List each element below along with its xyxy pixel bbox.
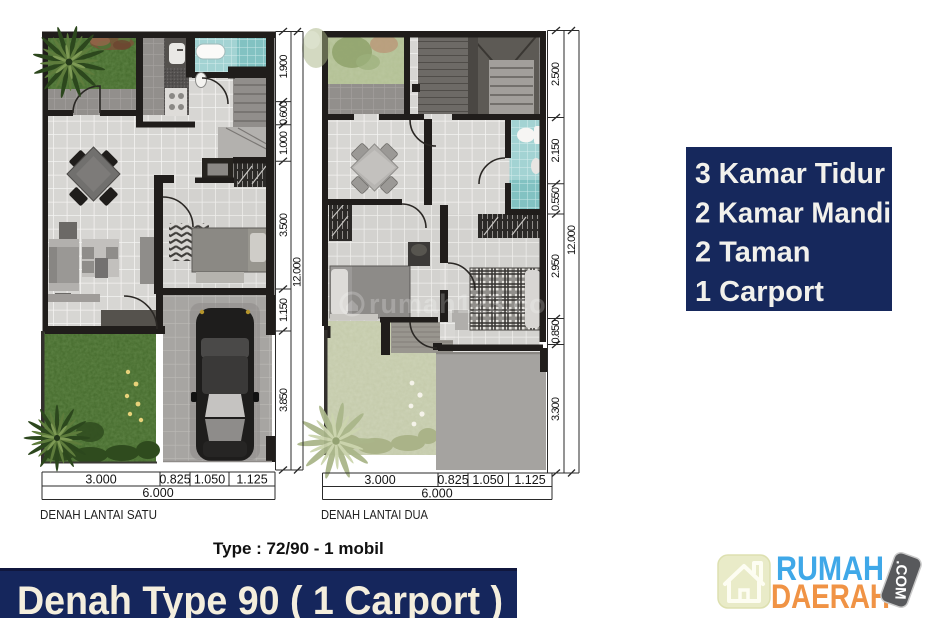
svg-text:1.000: 1.000	[278, 131, 290, 155]
svg-text:1 Carport: 1 Carport	[695, 276, 824, 308]
svg-text:6.000: 6.000	[421, 487, 452, 501]
svg-text:3.500: 3.500	[278, 213, 290, 237]
svg-text:2.950: 2.950	[550, 254, 562, 278]
svg-text:DENAH LANTAI DUA: DENAH LANTAI DUA	[321, 508, 429, 522]
svg-text:12.000: 12.000	[566, 225, 578, 255]
svg-text:2.500: 2.500	[550, 62, 562, 86]
svg-text:rumah123.com: rumah123.com	[369, 289, 572, 319]
svg-text:6.000: 6.000	[142, 486, 173, 500]
svg-text:1.125: 1.125	[514, 473, 545, 487]
svg-text:0.850: 0.850	[550, 320, 562, 344]
svg-text:0.825: 0.825	[159, 473, 190, 487]
svg-text:3.850: 3.850	[278, 388, 290, 412]
svg-text:DAERAH: DAERAH	[771, 578, 890, 616]
svg-text:3.000: 3.000	[85, 473, 116, 487]
svg-text:3.000: 3.000	[364, 473, 395, 487]
svg-text:1.150: 1.150	[278, 298, 290, 322]
svg-text:1.050: 1.050	[194, 473, 225, 487]
svg-text:0.550: 0.550	[550, 187, 562, 211]
svg-text:Denah Type 90 ( 1 Carport ): Denah Type 90 ( 1 Carport )	[17, 579, 503, 618]
svg-text:3 Kamar Tidur: 3 Kamar Tidur	[695, 158, 885, 190]
svg-text:0.825: 0.825	[437, 473, 468, 487]
svg-text:1.900: 1.900	[278, 55, 290, 79]
svg-text:2 Kamar Mandi: 2 Kamar Mandi	[695, 198, 891, 230]
svg-text:12.000: 12.000	[292, 257, 304, 287]
svg-text:1.050: 1.050	[472, 473, 503, 487]
svg-text:1.125: 1.125	[236, 473, 267, 487]
svg-text:.COM: .COM	[891, 560, 909, 600]
svg-text:DENAH LANTAI SATU: DENAH LANTAI SATU	[40, 508, 157, 522]
svg-text:2.150: 2.150	[550, 139, 562, 163]
svg-text:3.300: 3.300	[550, 397, 562, 421]
svg-text:Type : 72/90 - 1 mobil: Type : 72/90 - 1 mobil	[213, 539, 384, 558]
svg-text:0.600: 0.600	[278, 101, 290, 125]
svg-text:2 Taman: 2 Taman	[695, 237, 811, 269]
